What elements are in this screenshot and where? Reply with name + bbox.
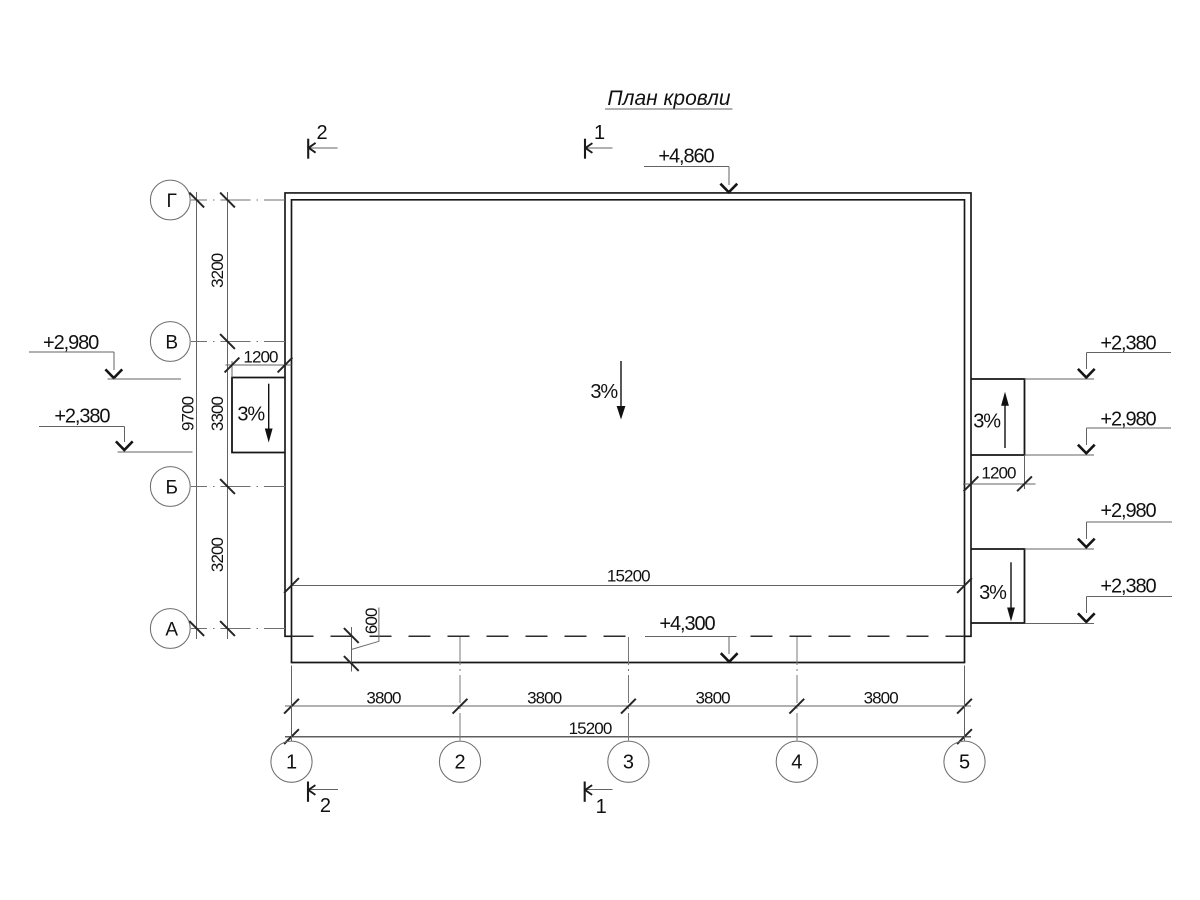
svg-text:1200: 1200 xyxy=(981,463,1016,482)
svg-text:3800: 3800 xyxy=(366,688,401,707)
svg-text:1200: 1200 xyxy=(243,347,278,366)
svg-text:3200: 3200 xyxy=(208,537,227,572)
svg-text:3%: 3% xyxy=(973,411,1001,433)
svg-text:Б: Б xyxy=(165,477,177,498)
svg-text:Г: Г xyxy=(167,191,177,212)
svg-text:+2,380: +2,380 xyxy=(1100,575,1156,597)
svg-text:600: 600 xyxy=(362,608,381,634)
svg-text:1: 1 xyxy=(286,752,297,774)
svg-text:5: 5 xyxy=(959,752,970,774)
svg-text:+2,980: +2,980 xyxy=(1100,500,1156,522)
svg-text:3300: 3300 xyxy=(208,396,227,431)
svg-text:9700: 9700 xyxy=(179,396,198,431)
svg-text:1: 1 xyxy=(596,796,607,818)
svg-text:3%: 3% xyxy=(237,404,265,426)
svg-text:+4,300: +4,300 xyxy=(659,613,715,635)
svg-text:2: 2 xyxy=(320,795,331,817)
svg-text:3%: 3% xyxy=(979,582,1007,604)
svg-text:15200: 15200 xyxy=(607,567,650,586)
svg-text:3800: 3800 xyxy=(527,688,562,707)
svg-text:3800: 3800 xyxy=(864,688,899,707)
svg-text:А: А xyxy=(165,619,178,640)
svg-text:3200: 3200 xyxy=(208,253,227,288)
svg-text:1: 1 xyxy=(594,122,605,144)
svg-text:+2,380: +2,380 xyxy=(1100,333,1156,355)
svg-text:3%: 3% xyxy=(590,381,618,403)
svg-text:2: 2 xyxy=(454,752,465,774)
svg-text:+2,980: +2,980 xyxy=(43,332,99,354)
svg-text:+4,860: +4,860 xyxy=(658,146,714,168)
svg-text:3800: 3800 xyxy=(695,688,730,707)
svg-text:+2,980: +2,980 xyxy=(1100,408,1156,430)
svg-text:3: 3 xyxy=(623,752,634,774)
svg-text:4: 4 xyxy=(791,752,802,774)
svg-text:15200: 15200 xyxy=(569,719,612,738)
svg-text:2: 2 xyxy=(316,122,327,144)
svg-text:В: В xyxy=(165,332,178,353)
svg-text:+2,380: +2,380 xyxy=(54,406,110,428)
svg-text:План кровли: План кровли xyxy=(607,87,731,110)
